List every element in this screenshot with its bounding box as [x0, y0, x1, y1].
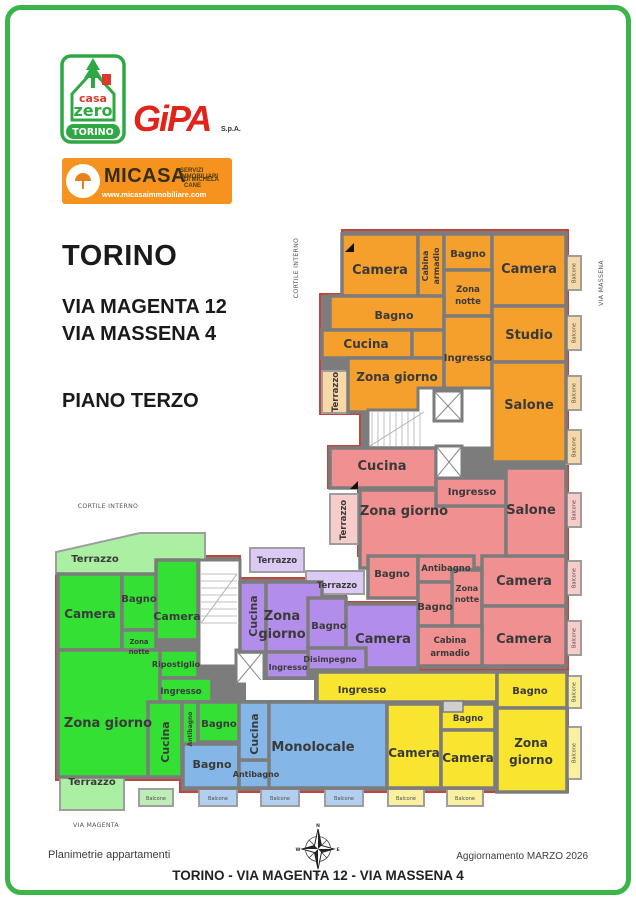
- room-orange-hall: [412, 330, 444, 358]
- balcony-label: Balcone: [572, 383, 578, 403]
- room-label: Zona giorno: [356, 370, 437, 384]
- room-label: Camera: [442, 751, 494, 765]
- room-label: Zona giorno: [64, 716, 152, 731]
- room-label: Bagno: [512, 686, 548, 697]
- room-label: Camera: [352, 263, 408, 278]
- room-label: Terrazzo: [71, 554, 119, 565]
- room-label: notte: [455, 297, 481, 307]
- room-label: Bagno: [450, 249, 486, 260]
- room-label: Camera: [153, 610, 200, 623]
- balcony-label: Balcone: [572, 743, 578, 763]
- room-label: Zona: [514, 736, 548, 750]
- room-label: Ingresso: [444, 353, 493, 364]
- room-label: Cucina: [159, 721, 172, 762]
- room-label: notte: [455, 595, 480, 604]
- room-label: Monolocale: [271, 740, 354, 755]
- room-label: Cucina: [343, 337, 388, 351]
- room-green-camera-2: [156, 560, 198, 640]
- room-label: Cucina: [248, 713, 261, 754]
- via-massena-label: VIA MASSENA: [598, 260, 605, 306]
- room-label: Ingresso: [338, 685, 387, 696]
- room-label: Bagno: [374, 569, 410, 580]
- footer-title: TORINO - VIA MAGENTA 12 - VIA MASSENA 4: [0, 868, 636, 883]
- balcony-label: Balcone: [572, 500, 578, 520]
- room-label: Bagno: [374, 309, 414, 322]
- balcony-label: Balcone: [146, 796, 166, 802]
- room-label: Terrazzo: [68, 777, 116, 788]
- compass-e: E: [336, 847, 339, 853]
- room-yellow-zona-giorno: [497, 708, 567, 792]
- room-label: Zona: [129, 638, 148, 646]
- room-label: Camera: [496, 632, 552, 647]
- balcony-label: Balcone: [572, 682, 578, 702]
- room-label: Bagno: [201, 719, 237, 730]
- room-label: Ingresso: [448, 487, 497, 498]
- courtyard-notch: [246, 680, 314, 700]
- balcony-label: Balcone: [572, 628, 578, 648]
- room-label: Zona: [456, 584, 478, 593]
- cortile-interno-left-label: CORTILE INTERNO: [78, 503, 138, 510]
- room-label: Bagno: [453, 714, 483, 724]
- room-label: Salone: [504, 398, 554, 413]
- compass-n: N: [316, 823, 320, 829]
- room-label: Antibagno: [233, 770, 280, 779]
- room-label: armadio: [432, 247, 441, 285]
- room-label: Terrazzo: [339, 500, 349, 540]
- room-label: giorno: [509, 753, 553, 767]
- room-label: Camera: [388, 746, 440, 760]
- room-label: Zona: [264, 609, 300, 624]
- room-green-zona-giorno: [58, 650, 160, 777]
- room-label: Bagno: [417, 602, 453, 613]
- room-label: Ingresso: [160, 687, 201, 697]
- room-label: Terrazzo: [331, 372, 341, 412]
- room-pink-cabina-armadio: [418, 626, 482, 666]
- room-label: Studio: [505, 328, 553, 343]
- room-label: Terrazzo: [317, 581, 357, 591]
- balcony-label: Balcone: [572, 263, 578, 283]
- room-label: Antibagno: [187, 712, 194, 747]
- balcony-label: Balcone: [208, 796, 228, 802]
- balcony-label: Balcone: [572, 437, 578, 457]
- room-label: Cabina: [434, 636, 467, 646]
- room-label: Zona giorno: [360, 504, 448, 519]
- room-label: Ripostiglio: [152, 660, 201, 669]
- room-label: Bagno: [121, 594, 157, 605]
- via-magenta-label: VIA MAGENTA: [73, 822, 119, 829]
- room-label: Camera: [64, 607, 116, 621]
- room-label: Disimpegno: [303, 655, 357, 664]
- balcony-label: Balcone: [455, 796, 475, 802]
- closet: [443, 701, 463, 712]
- compass-w: W: [296, 847, 301, 853]
- room-label: Camera: [355, 632, 411, 647]
- room-label: Ingresso: [269, 663, 308, 672]
- room-label: Bagno: [311, 621, 347, 632]
- balcony-label: Balcone: [572, 568, 578, 588]
- room-label: Terrazzo: [257, 556, 297, 566]
- room-label: notte: [129, 648, 150, 656]
- stairwell-left: [199, 560, 240, 666]
- balcony-label: Balcone: [270, 796, 290, 802]
- room-label: Salone: [506, 503, 556, 518]
- cortile-interno-top-label: CORTILE INTERNO: [293, 238, 300, 298]
- balcony-label: Balcone: [572, 323, 578, 343]
- footer-update-caption: Aggiornamento MARZO 2026: [456, 851, 588, 862]
- room-label: Camera: [496, 574, 552, 589]
- room-label: giorno: [258, 627, 305, 642]
- floor-plan: Camera Cabina armadio Bagno Camera Zona …: [0, 0, 636, 900]
- room-label: Cabina: [421, 251, 430, 282]
- flyer-page: casa zero TORINO GiPA S.p.A. MICASA SERV…: [0, 0, 636, 900]
- room-label: Antibagno: [421, 564, 471, 574]
- room-label: Bagno: [192, 758, 232, 771]
- room-label: Camera: [501, 262, 557, 277]
- balcony-label: Balcone: [396, 796, 416, 802]
- balcony-label: Balcone: [334, 796, 354, 802]
- room-label: Cucina: [358, 459, 407, 474]
- room-label: Zona: [456, 285, 480, 295]
- footer-left-caption: Planimetrie appartamenti: [48, 849, 170, 861]
- room-label: armadio: [430, 649, 470, 659]
